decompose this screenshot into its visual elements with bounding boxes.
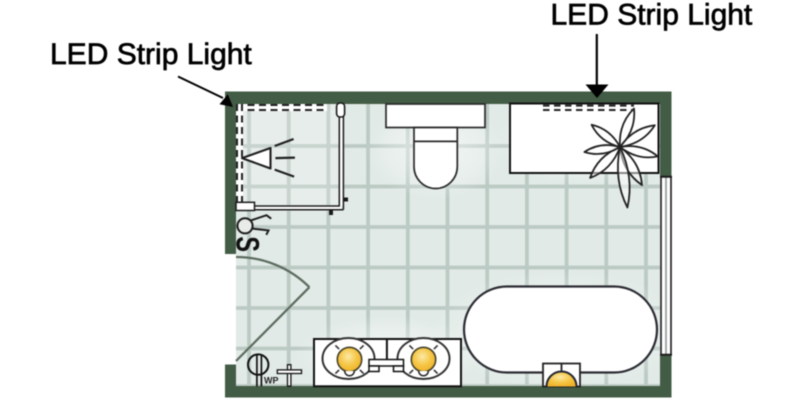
svg-text:LED Strip Light: LED Strip Light <box>551 0 753 32</box>
svg-text:WP: WP <box>264 376 279 386</box>
svg-text:LED Strip Light: LED Strip Light <box>50 38 252 71</box>
svg-text:S: S <box>230 236 266 252</box>
